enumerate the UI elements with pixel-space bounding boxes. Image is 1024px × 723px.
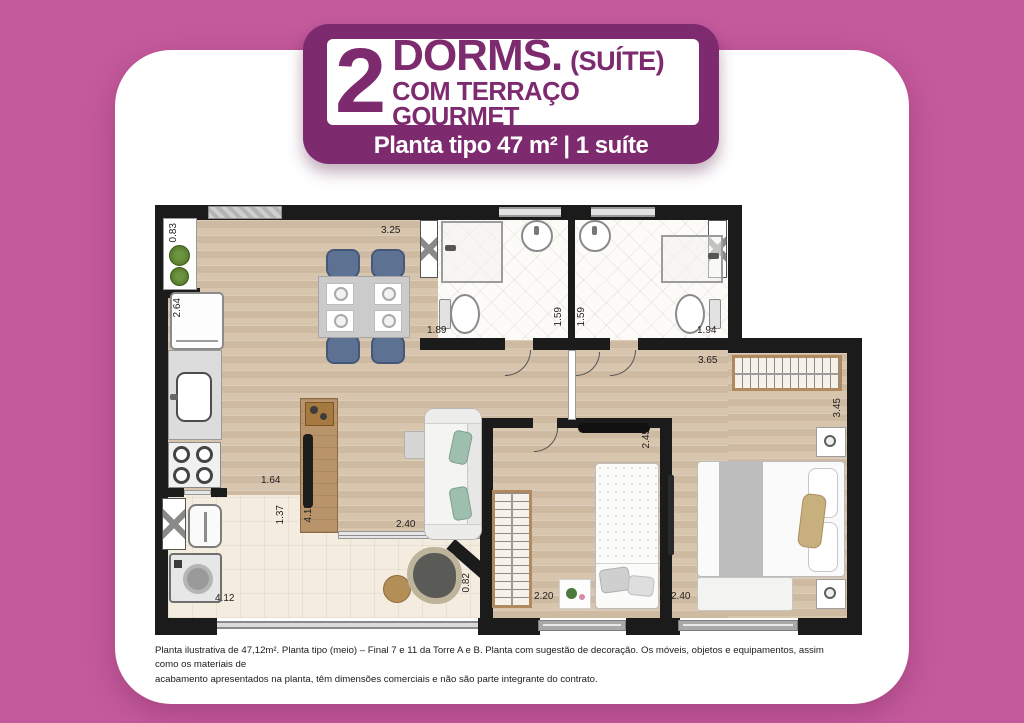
header-title-box: 2 DORMS. (SUÍTE) COM TERRAÇO GOURMET [327, 39, 699, 125]
dining-chair [371, 249, 405, 279]
shower-box [661, 235, 723, 283]
burner [173, 446, 190, 463]
burner [196, 467, 213, 484]
toy-rug [559, 579, 591, 609]
wardrobe [732, 355, 842, 391]
window [678, 620, 798, 631]
wall [728, 338, 862, 353]
cutting-board [305, 402, 334, 426]
dimension-label: 2.40 [671, 591, 690, 602]
bathroom1-window [499, 207, 561, 217]
floor-plan: 0.83 2.64 3.25 1.89 1.59 1.59 1.94 3.65 … [155, 205, 862, 635]
dining-chair [326, 334, 360, 364]
dimension-label: 1.89 [427, 325, 446, 336]
wall [847, 338, 862, 635]
kitchen-threshold [184, 490, 211, 495]
dimension-label: 2.40 [396, 519, 415, 530]
entry-door-mat [208, 206, 282, 219]
wall [211, 488, 227, 497]
flyer: 2 DORMS. (SUÍTE) COM TERRAÇO GOURMET Pla… [0, 0, 1024, 723]
wardrobe [492, 490, 532, 608]
title-suite: (SUÍTE) [570, 46, 664, 77]
bench [303, 434, 313, 508]
lamp [824, 435, 836, 447]
stove [168, 442, 221, 488]
shower-head [708, 253, 719, 259]
kitchen-sink [176, 372, 212, 422]
wall [420, 338, 505, 350]
dimension-label: 0.83 [168, 223, 179, 242]
bedroom-count: 2 [335, 46, 382, 118]
faucet [170, 394, 178, 400]
plan-subtitle: Planta tipo 47 m² | 1 suíte [303, 132, 719, 160]
wall [728, 205, 742, 353]
burner [173, 467, 190, 484]
placemat [326, 310, 354, 332]
water-tank [188, 504, 222, 548]
sofa [424, 408, 482, 540]
pillow [627, 575, 655, 598]
dimension-label: 3.65 [698, 355, 717, 366]
shower-box [441, 221, 503, 283]
title-terrace: COM TERRAÇO GOURMET [392, 80, 691, 131]
wall [155, 618, 217, 635]
placemat [374, 310, 402, 332]
egg-chair [407, 547, 462, 604]
window [538, 620, 626, 631]
disclaimer-text: Planta ilustrativa de 47,12m². Planta ti… [155, 644, 847, 687]
header-badge: 2 DORMS. (SUÍTE) COM TERRAÇO GOURMET Pla… [303, 24, 719, 164]
dimension-label: 2.64 [172, 298, 183, 317]
partition-wall [568, 350, 576, 420]
nightstand [816, 427, 846, 457]
dimension-label: 1.59 [553, 307, 564, 326]
dimension-label: 0.82 [461, 573, 472, 592]
dimension-label: 4.12 [215, 593, 234, 604]
plant [170, 267, 189, 286]
dining-table [318, 276, 410, 338]
dimension-label: 3.45 [832, 398, 843, 417]
lamp [824, 587, 836, 599]
dimension-label: 1.64 [261, 475, 280, 486]
dimension-label: 2.20 [534, 591, 553, 602]
placemat [326, 283, 354, 305]
door-leaf [668, 475, 674, 555]
dimension-label: 1.37 [275, 505, 286, 524]
duct-shaft [420, 220, 438, 278]
bathroom-sink [579, 220, 611, 252]
tv-panel [578, 423, 650, 433]
wall [638, 338, 742, 350]
wall [626, 618, 680, 635]
single-bed [595, 463, 659, 609]
washer-button [174, 560, 182, 568]
plant [169, 245, 190, 266]
terrace-railing [217, 621, 478, 629]
bed-throw [719, 462, 763, 576]
wall [478, 618, 540, 635]
double-bed [697, 461, 845, 577]
bathroom-sink [521, 220, 553, 252]
washer-door [183, 564, 213, 594]
dimension-label: 1.59 [576, 307, 587, 326]
wall [798, 618, 862, 635]
double-bed-foot [697, 577, 793, 611]
dimension-label: 3.25 [381, 225, 400, 236]
bathroom2-window [591, 207, 655, 217]
duct-shaft [162, 498, 186, 550]
mattress [596, 464, 658, 564]
wall [568, 220, 575, 340]
dining-chair [371, 334, 405, 364]
title-dorms: DORMS. [392, 34, 562, 78]
nightstand [816, 579, 846, 609]
dining-chair [326, 249, 360, 279]
burner [196, 446, 213, 463]
placemat [374, 283, 402, 305]
dimension-label: 4.15 [303, 503, 314, 522]
wall [533, 338, 610, 350]
wall [168, 488, 184, 497]
shower-head [445, 245, 456, 251]
dimension-label: 1.94 [697, 325, 716, 336]
wall [488, 418, 533, 428]
dimension-label: 2.45 [641, 429, 652, 448]
